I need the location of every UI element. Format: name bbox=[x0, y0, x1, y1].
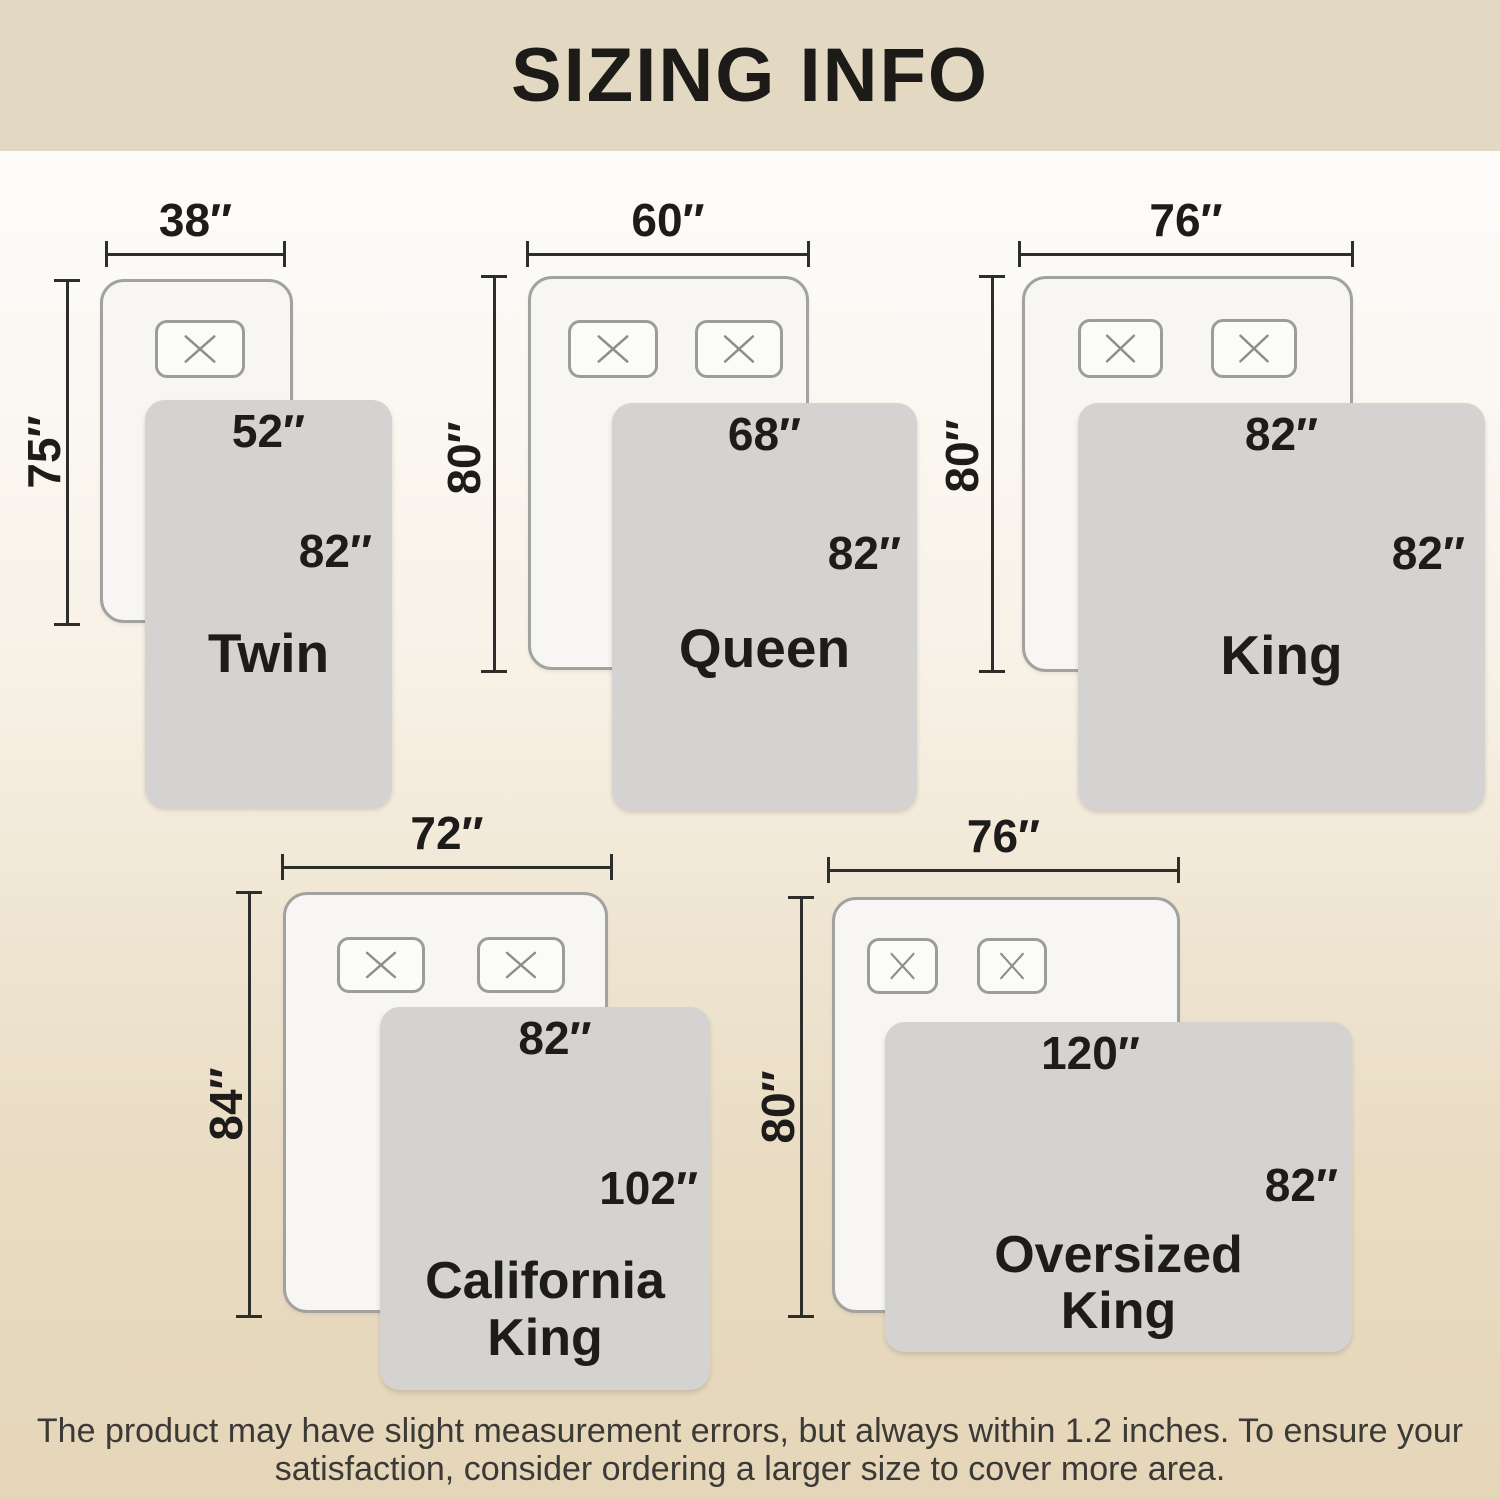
bed-width-dimension-line: 76″ bbox=[828, 869, 1179, 872]
pillow-icon bbox=[477, 937, 565, 993]
bed-width-dimension-line: 76″ bbox=[1019, 253, 1353, 256]
bed-width-label: 76″ bbox=[758, 809, 1249, 863]
pillow-icon bbox=[1078, 319, 1163, 378]
blanket-twin: 52″ 82″ Twin bbox=[145, 400, 392, 807]
disclaimer-line-2: satisfaction, consider ordering a larger… bbox=[0, 1450, 1500, 1488]
pillow-icon bbox=[695, 320, 783, 378]
bed-width-label: 72″ bbox=[212, 806, 682, 860]
pillow-icon bbox=[155, 320, 245, 378]
bed-length-label: 80″ bbox=[748, 1042, 808, 1172]
disclaimer-line-1: The product may have slight measurement … bbox=[0, 1412, 1500, 1450]
x-mark-icon bbox=[870, 941, 935, 991]
blanket-width-label: 52″ bbox=[145, 404, 392, 458]
x-mark-icon bbox=[571, 323, 655, 375]
bed-length-label: 80″ bbox=[434, 393, 494, 523]
blanket-width-label: 68″ bbox=[612, 407, 917, 461]
x-mark-icon bbox=[980, 941, 1044, 991]
x-mark-icon bbox=[1081, 322, 1160, 375]
bed-width-dimension-line: 38″ bbox=[106, 253, 285, 256]
bed-length-label: 80″ bbox=[932, 391, 992, 521]
size-name: Twin bbox=[145, 624, 392, 682]
x-mark-icon bbox=[158, 323, 242, 375]
pillow-icon bbox=[977, 938, 1047, 994]
size-name: Oversized King bbox=[885, 1227, 1352, 1339]
x-mark-icon bbox=[340, 940, 422, 990]
pillow-icon bbox=[867, 938, 938, 994]
size-name: California King bbox=[380, 1253, 710, 1367]
blanket-width-label: 120″ bbox=[885, 1026, 1352, 1080]
bed-width-label: 38″ bbox=[36, 193, 355, 247]
pillow-icon bbox=[1211, 319, 1297, 378]
bed-width-label: 76″ bbox=[949, 193, 1423, 247]
bed-width-dimension-line: 72″ bbox=[282, 866, 612, 869]
page-title: SIZING INFO bbox=[511, 32, 989, 119]
title-band: SIZING INFO bbox=[0, 0, 1500, 151]
blanket-queen: 68″ 82″ Queen bbox=[612, 403, 917, 810]
bed-length-label: 75″ bbox=[14, 387, 74, 517]
x-mark-icon bbox=[698, 323, 780, 375]
x-mark-icon bbox=[1214, 322, 1294, 375]
blanket-california-king: 82″ 102″ California King bbox=[380, 1007, 710, 1390]
bed-length-label: 84″ bbox=[196, 1039, 256, 1169]
size-name: King bbox=[1078, 626, 1485, 684]
pillow-icon bbox=[337, 937, 425, 993]
pillow-icon bbox=[568, 320, 658, 378]
size-name: Queen bbox=[612, 619, 917, 677]
disclaimer-text: The product may have slight measurement … bbox=[0, 1412, 1500, 1488]
blanket-length-label: 82″ bbox=[299, 524, 372, 578]
blanket-oversized-king: 120″ 82″ Oversized King bbox=[885, 1022, 1352, 1352]
blanket-length-label: 82″ bbox=[828, 526, 901, 580]
sizing-info-graphic: SIZING INFO 38″ 75″ 52″ 82″ Twin 60″ 80″ bbox=[0, 0, 1500, 1499]
blanket-length-label: 82″ bbox=[1265, 1158, 1338, 1212]
blanket-length-label: 102″ bbox=[599, 1161, 698, 1215]
blanket-length-label: 82″ bbox=[1392, 526, 1465, 580]
blanket-king: 82″ 82″ King bbox=[1078, 403, 1485, 810]
bed-width-label: 60″ bbox=[457, 193, 879, 247]
blanket-width-label: 82″ bbox=[380, 1011, 710, 1065]
bed-width-dimension-line: 60″ bbox=[527, 253, 809, 256]
blanket-width-label: 82″ bbox=[1078, 407, 1485, 461]
x-mark-icon bbox=[480, 940, 562, 990]
